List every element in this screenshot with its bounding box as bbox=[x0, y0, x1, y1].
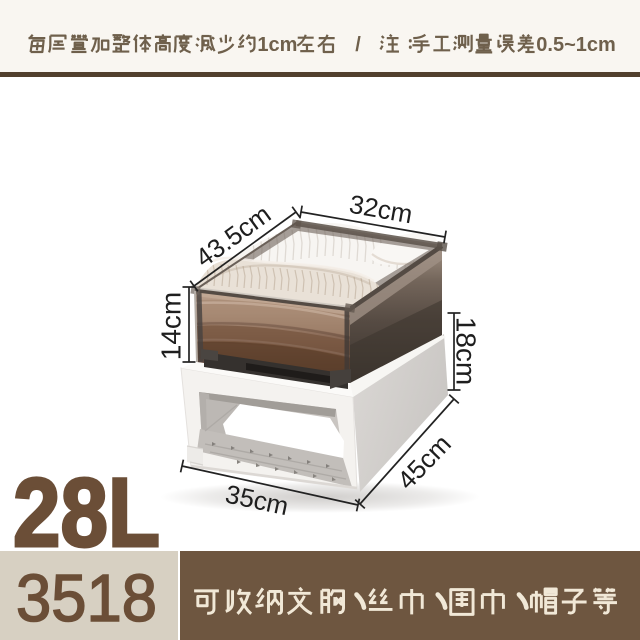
svg-text:/: / bbox=[355, 34, 361, 56]
svg-text:28L: 28L bbox=[13, 458, 160, 567]
svg-text:14cm: 14cm bbox=[156, 292, 187, 360]
svg-text:0.5~1cm: 0.5~1cm bbox=[536, 34, 616, 56]
svg-text:3518: 3518 bbox=[16, 561, 157, 636]
svg-text:1cm: 1cm bbox=[257, 34, 297, 56]
svg-text:18cm: 18cm bbox=[450, 317, 481, 385]
